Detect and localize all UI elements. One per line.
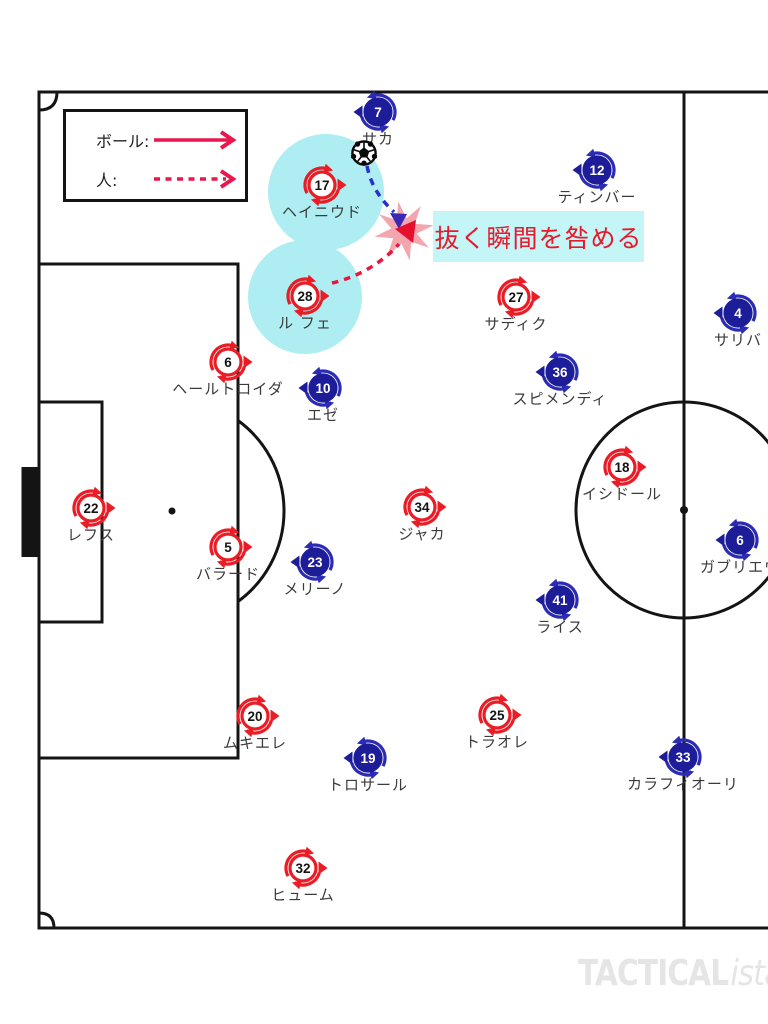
player-name-label: ヘールトロイダ [172, 378, 283, 399]
facing-triangle-icon [244, 356, 253, 369]
facing-triangle-icon [338, 179, 347, 192]
facing-triangle-icon [513, 709, 522, 722]
player-number: 36 [552, 365, 568, 380]
penalty-spot [169, 508, 176, 515]
player-number: 4 [734, 306, 742, 321]
corner-arc-top-left [39, 92, 57, 110]
player-name-label: トロサール [328, 774, 408, 795]
dashed-arrow-icon [152, 168, 246, 190]
tactics-board: TACTICALista ボール: [0, 0, 768, 1024]
facing-triangle-icon [638, 461, 647, 474]
player-number: 10 [315, 381, 330, 396]
facing-triangle-icon [344, 752, 353, 765]
player-number: 5 [224, 540, 232, 555]
player-number: 32 [295, 861, 310, 876]
facing-triangle-icon [354, 106, 363, 119]
facing-triangle-icon [714, 307, 723, 320]
player-name-label: カラフィオーリ [627, 773, 739, 794]
player-name-label: ル フェ [278, 312, 332, 333]
annotation-label[interactable]: 抜く瞬間を咎める [433, 211, 644, 262]
player-number: 22 [83, 501, 98, 516]
corner-arc-bottom-left [39, 913, 54, 928]
player-name-label: ムキエレ [223, 732, 287, 753]
center-spot [680, 506, 688, 514]
player-number: 27 [508, 290, 523, 305]
facing-triangle-icon [659, 751, 668, 764]
player-name-label: ティンバー [557, 186, 636, 207]
legend-row-person: 人: [96, 167, 246, 191]
player-name-label: ヒューム [271, 884, 335, 905]
player-number: 18 [614, 460, 630, 475]
player-number: 41 [552, 593, 568, 608]
player-name-label: ジャカ [398, 523, 445, 544]
player-number: 12 [589, 163, 604, 178]
facing-triangle-icon [244, 541, 253, 554]
facing-triangle-icon [716, 534, 725, 547]
player-name-label: サリバ [714, 329, 762, 350]
facing-triangle-icon [107, 502, 116, 515]
player-number: 7 [374, 105, 382, 120]
pitch-marks [22, 467, 689, 557]
facing-triangle-icon [536, 366, 545, 379]
player-number: 28 [297, 289, 313, 304]
solid-arrow-icon [152, 129, 246, 151]
player-number: 23 [307, 555, 323, 570]
facing-triangle-icon [319, 862, 328, 875]
player-number: 34 [414, 500, 430, 515]
player-number: 19 [360, 751, 375, 766]
player-number: 20 [247, 709, 262, 724]
player-name-label: レフス [67, 524, 115, 545]
player-number: 17 [314, 178, 329, 193]
facing-triangle-icon [532, 291, 541, 304]
player-name-label: バラード [196, 563, 260, 584]
player-name-label: ガブリエウ [700, 556, 768, 577]
legend-person-label: 人: [96, 167, 152, 191]
player-number: 6 [224, 355, 232, 370]
player-name-label: ヘイニウド [282, 201, 362, 222]
legend-ball-label: ボール: [96, 128, 152, 152]
player-name-label: ライス [536, 616, 584, 637]
player-number: 6 [736, 533, 744, 548]
facing-triangle-icon [573, 164, 582, 177]
legend-box[interactable]: ボール: 人: [63, 109, 248, 202]
facing-triangle-icon [299, 382, 308, 395]
player-number: 25 [489, 708, 505, 723]
facing-triangle-icon [291, 556, 300, 569]
player-name-label: エゼ [307, 404, 339, 425]
facing-triangle-icon [536, 594, 545, 607]
facing-triangle-icon [321, 290, 330, 303]
legend-row-ball: ボール: [96, 128, 246, 152]
facing-triangle-icon [438, 501, 447, 514]
player-name-label: イシドール [582, 483, 662, 504]
player-name-label: スピメンディ [513, 388, 608, 409]
soccer-ball[interactable] [351, 140, 377, 166]
goal [22, 467, 40, 557]
center-circle [576, 402, 768, 618]
player-name-label: トラオレ [465, 731, 529, 752]
player-number: 33 [675, 750, 691, 765]
player-name-label: メリーノ [283, 578, 346, 599]
player-name-label: サディク [485, 313, 548, 334]
facing-triangle-icon [271, 710, 280, 723]
